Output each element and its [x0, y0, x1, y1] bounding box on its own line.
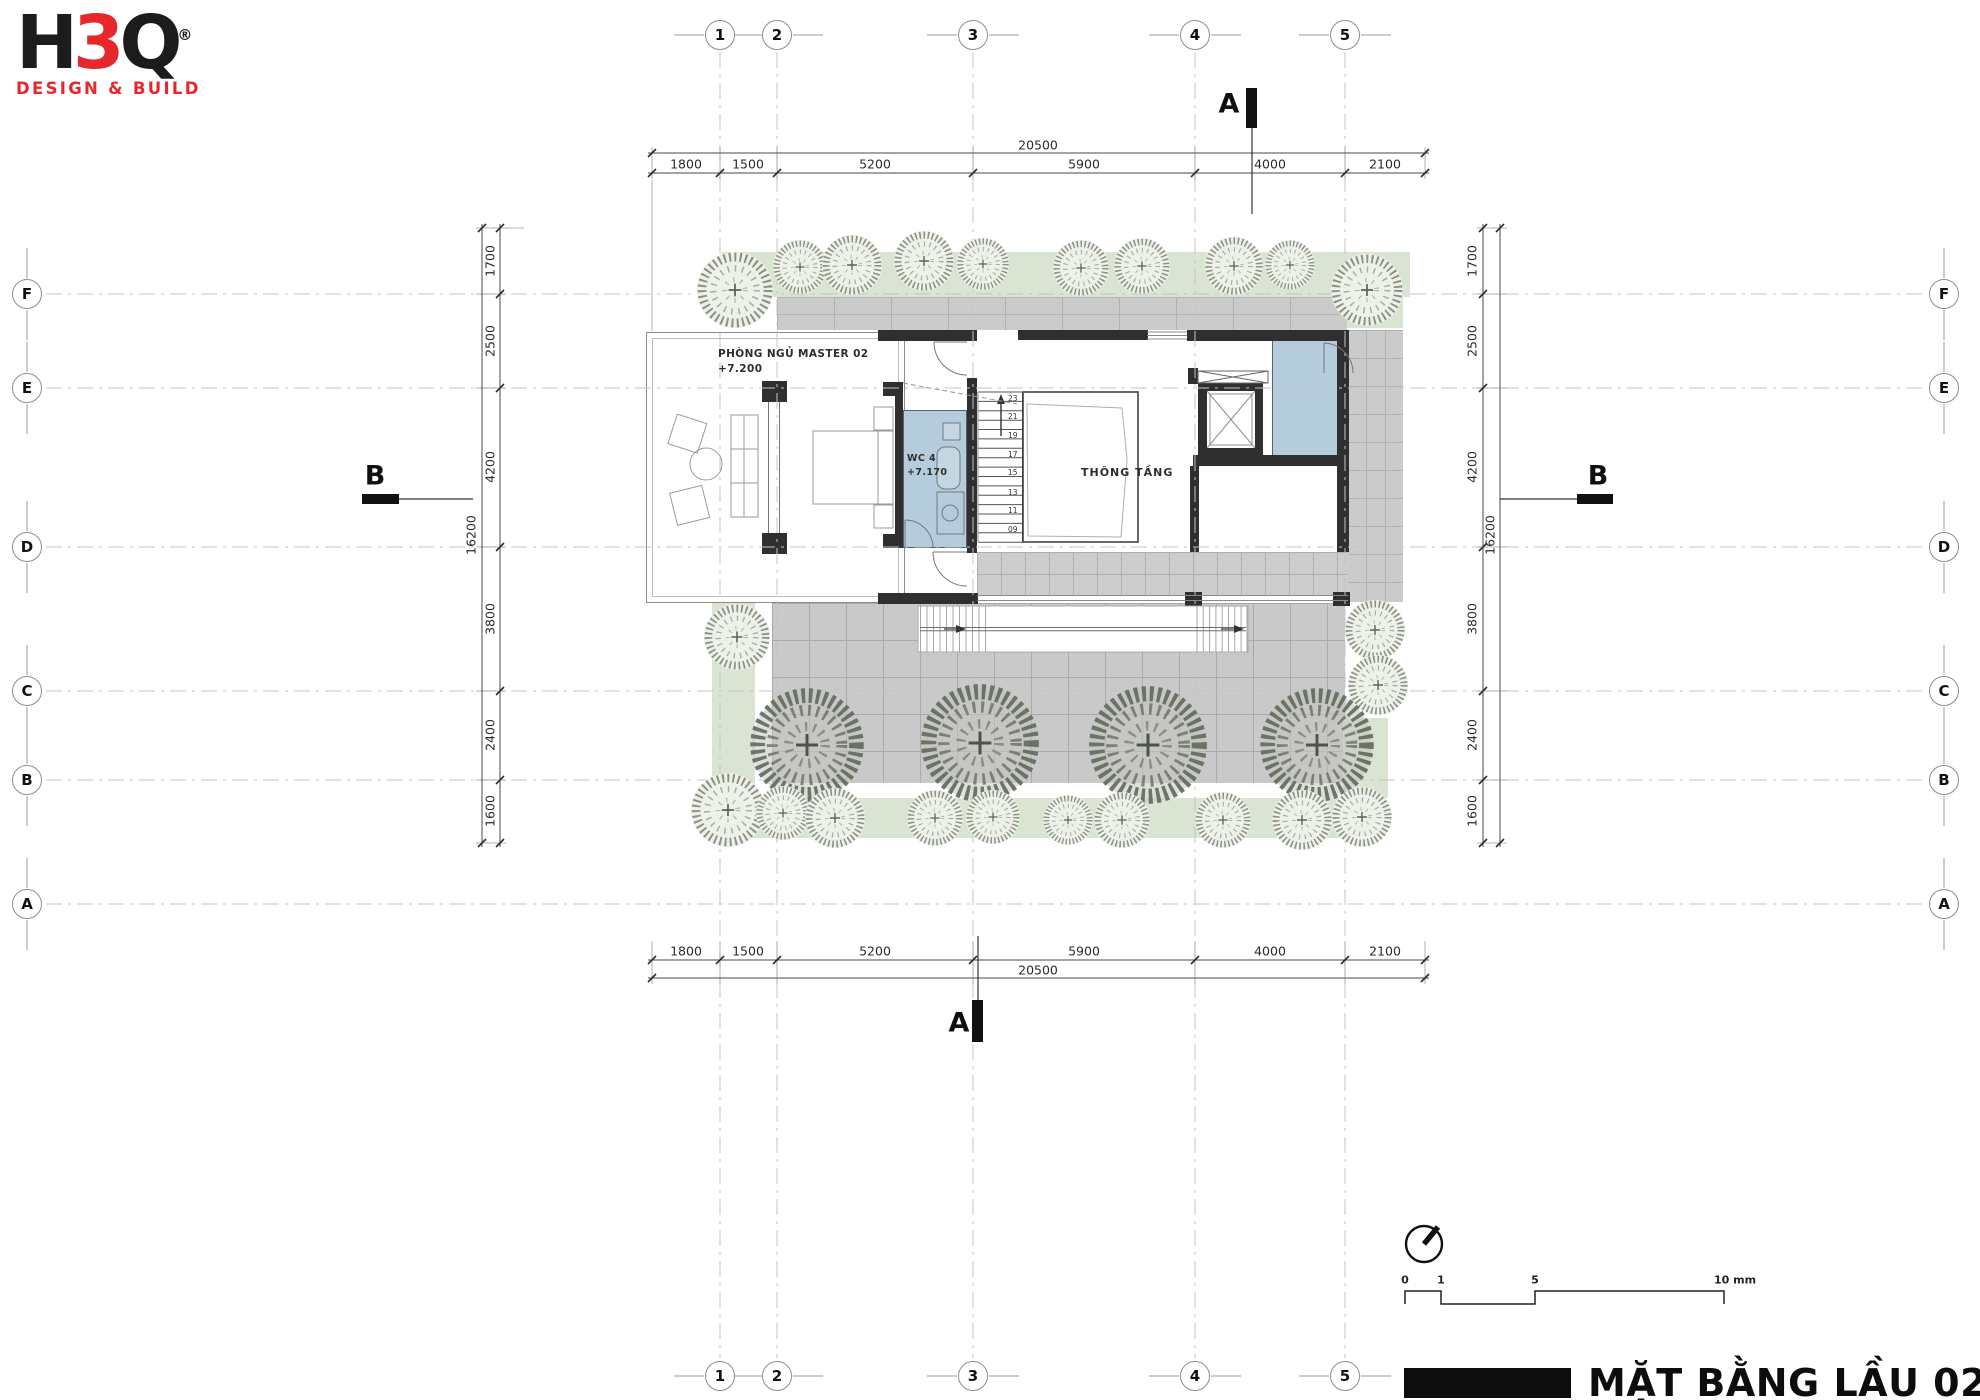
dim-top-total: 20500 [1018, 138, 1058, 153]
dim-bottom-seg: 1500 [732, 944, 764, 959]
grid-bubble-col-3-top: 3 [958, 20, 988, 50]
dim-right-total: 16200 [1483, 515, 1498, 555]
grid-bubble-row-A-right: A [1929, 889, 1959, 919]
grid-bubble-row-E-right: E [1929, 373, 1959, 403]
dim-left-seg: 1600 [483, 795, 498, 827]
logo-tagline: DESIGN & BUILD [16, 79, 201, 98]
stair-break-line [903, 383, 1017, 404]
scale-label-1: 1 [1437, 1274, 1445, 1287]
logo-letter: 3 [73, 0, 120, 86]
dim-bottom-seg: 5900 [1068, 944, 1100, 959]
grid-label: 2 [772, 1367, 782, 1385]
grid-label: B [1938, 771, 1949, 789]
grid-label: 5 [1340, 1367, 1350, 1385]
stair-number: 11 [1008, 506, 1018, 515]
dim-bottom-total: 20500 [1018, 963, 1058, 978]
dim-bottom-seg: 1800 [670, 944, 702, 959]
grid-label: 1 [715, 1367, 725, 1385]
grid-label: 2 [772, 26, 782, 44]
grid-label: D [1938, 538, 1950, 556]
strip-window [1147, 332, 1187, 339]
grid-label: 5 [1340, 26, 1350, 44]
grid-bubble-col-4-top: 4 [1180, 20, 1210, 50]
dim-bottom-seg: 2100 [1369, 944, 1401, 959]
grid-bubble-row-F-left: F [12, 279, 42, 309]
door-swings [905, 342, 1353, 586]
section-markers [362, 88, 1613, 1042]
grid-bubble-col-2-top: 2 [762, 20, 792, 50]
louver-window [1198, 371, 1268, 383]
dim-right-seg: 1700 [1465, 245, 1480, 277]
grid-bubble-row-E-left: E [12, 373, 42, 403]
grid-label: C [1938, 682, 1949, 700]
grid-bubble-row-B-left: B [12, 765, 42, 795]
section-letter-a-top: A [1219, 89, 1240, 120]
dim-left-seg: 2400 [483, 719, 498, 751]
elevator-icon [1207, 391, 1255, 448]
north-indicator-icon [1406, 1226, 1442, 1262]
grid-bubble-row-B-right: B [1929, 765, 1959, 795]
terrace-stair [918, 606, 1248, 652]
grid-label: 4 [1190, 26, 1200, 44]
dim-top-seg: 5200 [859, 157, 891, 172]
room-level-master: +7.200 [718, 363, 762, 375]
grid-label: 1 [715, 26, 725, 44]
wc-fixtures [937, 423, 964, 534]
grid-bubble-col-1-top: 1 [705, 20, 735, 50]
grid-bubble-col-2-bottom: 2 [762, 1361, 792, 1391]
grid-bubble-col-4-bottom: 4 [1180, 1361, 1210, 1391]
dim-bottom-seg: 5200 [859, 944, 891, 959]
scale-label-5: 5 [1531, 1274, 1539, 1287]
dim-top-seg: 5900 [1068, 157, 1100, 172]
room-label-void: THÔNG TẦNG [1081, 466, 1173, 479]
dim-top-seg: 1500 [732, 157, 764, 172]
grid-label: C [21, 682, 32, 700]
dim-top-seg: 2100 [1369, 157, 1401, 172]
room-level-wc4: +7.170 [907, 467, 947, 478]
bushes-top-row [697, 231, 1403, 328]
grid-bubble-row-A-left: A [12, 889, 42, 919]
room-label-master: PHÒNG NGỦ MASTER 02 [718, 348, 868, 360]
grid-bubble-row-C-right: C [1929, 676, 1959, 706]
grid-bubble-col-3-bottom: 3 [958, 1361, 988, 1391]
section-letter-a-bottom: A [949, 1008, 970, 1039]
dim-top-seg: 4000 [1254, 157, 1286, 172]
stair-number: 15 [1008, 468, 1018, 477]
grid-label: A [21, 895, 33, 913]
room-label-wc4: WC 4 [907, 453, 936, 464]
dim-right-seg: 2500 [1465, 325, 1480, 357]
drawing-linework [0, 0, 1980, 1400]
scale-label-0: 0 [1401, 1274, 1409, 1287]
grid-label: D [21, 538, 33, 556]
grid-label: F [1939, 285, 1949, 303]
grid-bubble-row-D-left: D [12, 532, 42, 562]
dim-left-seg: 4200 [483, 451, 498, 483]
dim-bottom-seg: 4000 [1254, 944, 1286, 959]
dim-left-seg: 1700 [483, 245, 498, 277]
stair-number: 21 [1008, 412, 1018, 421]
grid-label: E [22, 379, 32, 397]
bedroom-furniture [668, 402, 893, 533]
stair-number: 09 [1008, 525, 1018, 534]
title-block-bar [1404, 1368, 1571, 1398]
dim-right-seg: 3800 [1465, 603, 1480, 635]
grid-label: A [1938, 895, 1950, 913]
drawing-title: MẶT BẰNG LẦU 02 [1588, 1361, 1980, 1400]
dim-left-total: 16200 [464, 515, 479, 555]
grid-bubble-row-F-right: F [1929, 279, 1959, 309]
grid-label: F [22, 285, 32, 303]
scale-label-10mm: 10 mm [1714, 1274, 1756, 1287]
grid-bubble-col-5-bottom: 5 [1330, 1361, 1360, 1391]
scale-bar [1405, 1291, 1724, 1304]
registered-mark-icon: ® [177, 26, 192, 44]
grid-label: 4 [1190, 1367, 1200, 1385]
dim-left-seg: 3800 [483, 603, 498, 635]
grid-label: 3 [968, 26, 978, 44]
grid-label: B [21, 771, 32, 789]
floor-plan-sheet: 1 2 3 4 5 1 2 3 4 5 F E D C B A F E D C … [0, 0, 1980, 1400]
stair-number: 19 [1008, 431, 1018, 440]
dim-top-seg: 1800 [670, 157, 702, 172]
logo-letter: H [16, 0, 73, 86]
dim-right-seg: 1600 [1465, 795, 1480, 827]
logo-wordmark: H3Q® [16, 8, 201, 78]
slab-edge-lines [977, 596, 1348, 601]
section-letter-b-left: B [365, 461, 386, 492]
stair-number: 13 [1008, 488, 1018, 497]
section-letter-b-right: B [1588, 461, 1609, 492]
grid-bubble-row-C-left: C [12, 676, 42, 706]
dim-left-seg: 2500 [483, 325, 498, 357]
grid-bubble-col-1-bottom: 1 [705, 1361, 735, 1391]
grid-bubble-row-D-right: D [1929, 532, 1959, 562]
company-logo: H3Q® DESIGN & BUILD [16, 8, 201, 98]
trees-large-dark [752, 686, 1372, 802]
dim-right-seg: 4200 [1465, 451, 1480, 483]
grid-bubble-col-5-top: 5 [1330, 20, 1360, 50]
stair-number: 17 [1008, 450, 1018, 459]
dim-right-seg: 2400 [1465, 719, 1480, 751]
stair-number: 23 [1008, 394, 1018, 403]
logo-letter: Q [119, 0, 177, 86]
grid-label: E [1939, 379, 1949, 397]
grid-label: 3 [968, 1367, 978, 1385]
